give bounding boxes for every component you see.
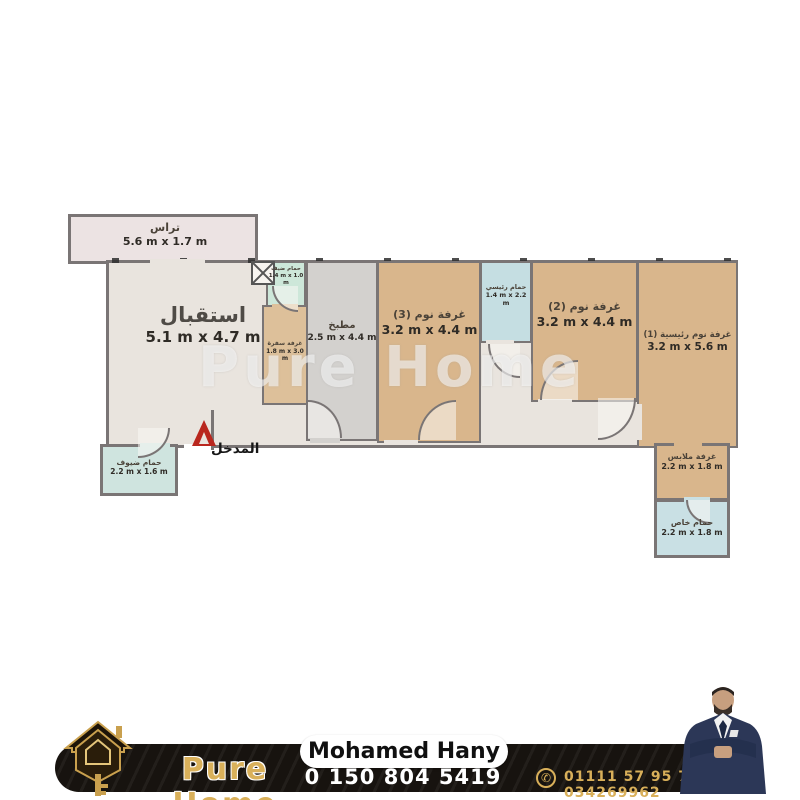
- pure-home-logo: [56, 718, 140, 800]
- label-master-bedroom: غرفة نوم رئيسية (1) 3.2 m x 5.6 m: [640, 330, 735, 354]
- phone-icon: ✆: [536, 768, 556, 788]
- door-gap: [310, 438, 340, 443]
- flyer-page: Pure Home تراس 5.6 m x 1.7 m استقبال 5.1…: [0, 0, 800, 800]
- label-dining: غرفة سفرة 1.8 m x 3.0 m: [263, 340, 307, 363]
- door-gap: [674, 442, 702, 449]
- label-kitchen: مطبخ 2.5 m x 4.4 m: [307, 320, 377, 344]
- label-main-bathroom: حمام رئيسي 1.4 m x 2.2 m: [482, 283, 530, 307]
- label-guest-bathroom: حمام ضيوف 2.2 m x 1.6 m: [104, 458, 174, 477]
- agent-name-bubble: Mohamed Hany: [300, 735, 508, 768]
- door-gap: [150, 259, 205, 265]
- label-guest-wc: حمام ضيف 1.4 m x 1.0 m: [267, 266, 305, 287]
- door-gap: [637, 404, 642, 440]
- room-master-bedroom: [637, 261, 738, 448]
- label-bedroom-2: غرفة نوم (2) 3.2 m x 4.4 m: [533, 300, 636, 329]
- label-terrace: تراس 5.6 m x 1.7 m: [90, 221, 240, 249]
- label-private-bathroom: حمام خاص 2.2 m x 1.8 m: [658, 518, 726, 538]
- label-entrance: المدخل: [211, 441, 275, 458]
- agent-photo: [652, 686, 794, 794]
- door-gap: [384, 440, 418, 445]
- label-bedroom-3: غرفة نوم (3) 3.2 m x 4.4 m: [380, 308, 479, 337]
- agent-name: Mohamed Hany: [308, 739, 500, 764]
- brand-text: Pure Home: [140, 752, 310, 800]
- phone-main: 0 150 804 5419: [303, 765, 503, 789]
- label-dressing: غرفة ملابس 2.2 m x 1.8 m: [658, 452, 726, 472]
